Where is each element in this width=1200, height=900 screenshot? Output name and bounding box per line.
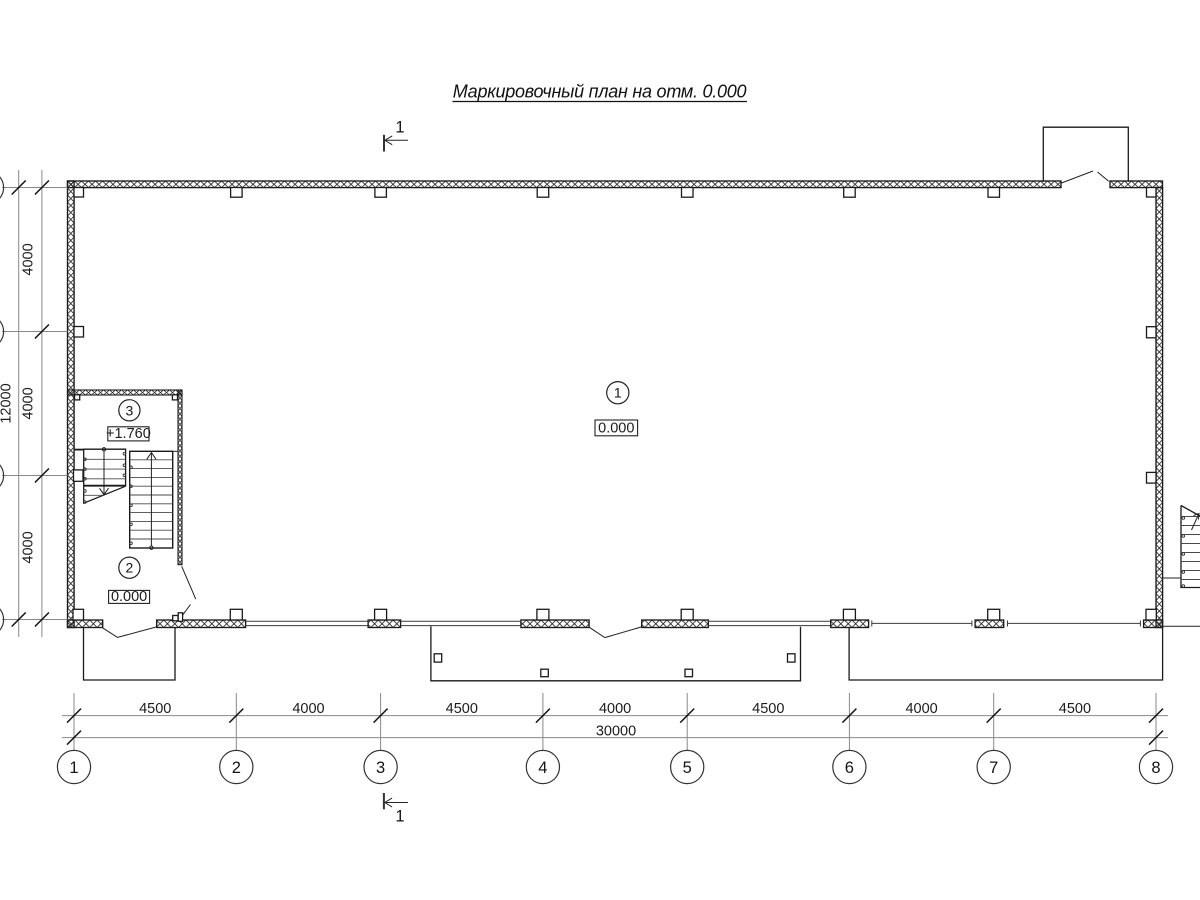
svg-text:0.000: 0.000 (111, 589, 147, 605)
svg-text:4000: 4000 (292, 701, 324, 717)
svg-text:4: 4 (538, 759, 547, 777)
svg-text:2: 2 (232, 759, 241, 777)
svg-text:1: 1 (614, 385, 622, 401)
svg-text:3: 3 (376, 759, 385, 777)
svg-text:4000: 4000 (599, 701, 631, 717)
svg-text:6: 6 (845, 759, 854, 777)
svg-text:4500: 4500 (139, 701, 171, 717)
svg-text:4500: 4500 (752, 701, 784, 717)
svg-text:5: 5 (683, 759, 692, 777)
svg-text:1: 1 (395, 119, 404, 137)
svg-text:4000: 4000 (21, 387, 37, 419)
svg-text:4000: 4000 (21, 531, 37, 563)
svg-text:4500: 4500 (446, 701, 478, 717)
svg-text:1: 1 (395, 808, 404, 826)
svg-text:12000: 12000 (0, 383, 15, 423)
svg-text:4500: 4500 (1059, 701, 1091, 717)
svg-text:0.000: 0.000 (598, 420, 634, 436)
svg-text:1: 1 (69, 759, 78, 777)
svg-text:+1.760: +1.760 (106, 426, 151, 442)
svg-text:30000: 30000 (596, 723, 636, 739)
svg-text:2: 2 (126, 560, 134, 576)
svg-text:Маркировочный план на отм. 0.0: Маркировочный план на отм. 0.000 (453, 82, 747, 102)
svg-text:8: 8 (1151, 759, 1160, 777)
svg-text:4000: 4000 (21, 243, 37, 275)
svg-text:4000: 4000 (905, 701, 937, 717)
svg-text:3: 3 (126, 402, 134, 418)
svg-text:7: 7 (989, 759, 998, 777)
